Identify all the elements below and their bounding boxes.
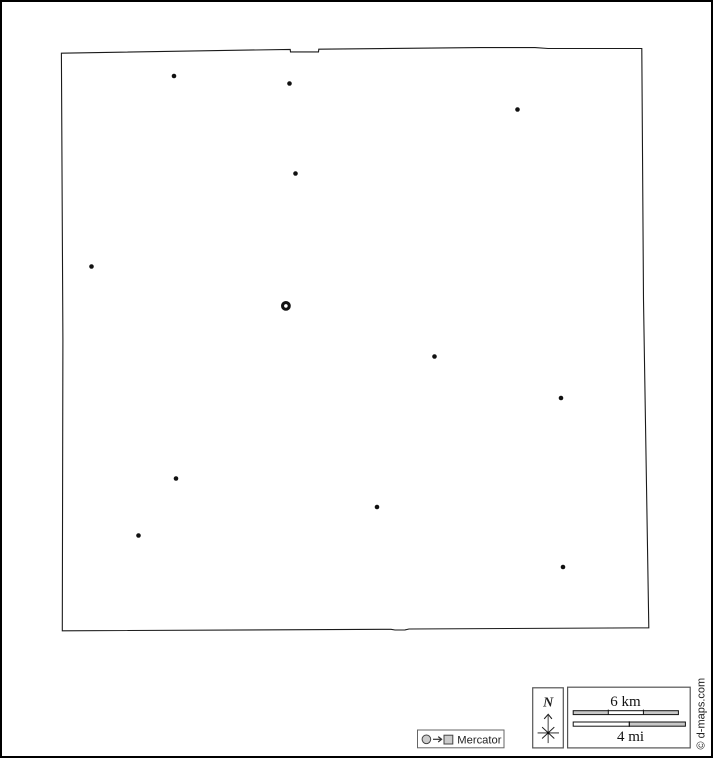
svg-text:© d-maps.com: © d-maps.com bbox=[695, 678, 707, 750]
svg-text:6 km: 6 km bbox=[610, 694, 641, 710]
svg-text:N: N bbox=[542, 696, 554, 711]
svg-text:Mercator: Mercator bbox=[457, 735, 501, 747]
svg-text:4 mi: 4 mi bbox=[617, 729, 644, 745]
